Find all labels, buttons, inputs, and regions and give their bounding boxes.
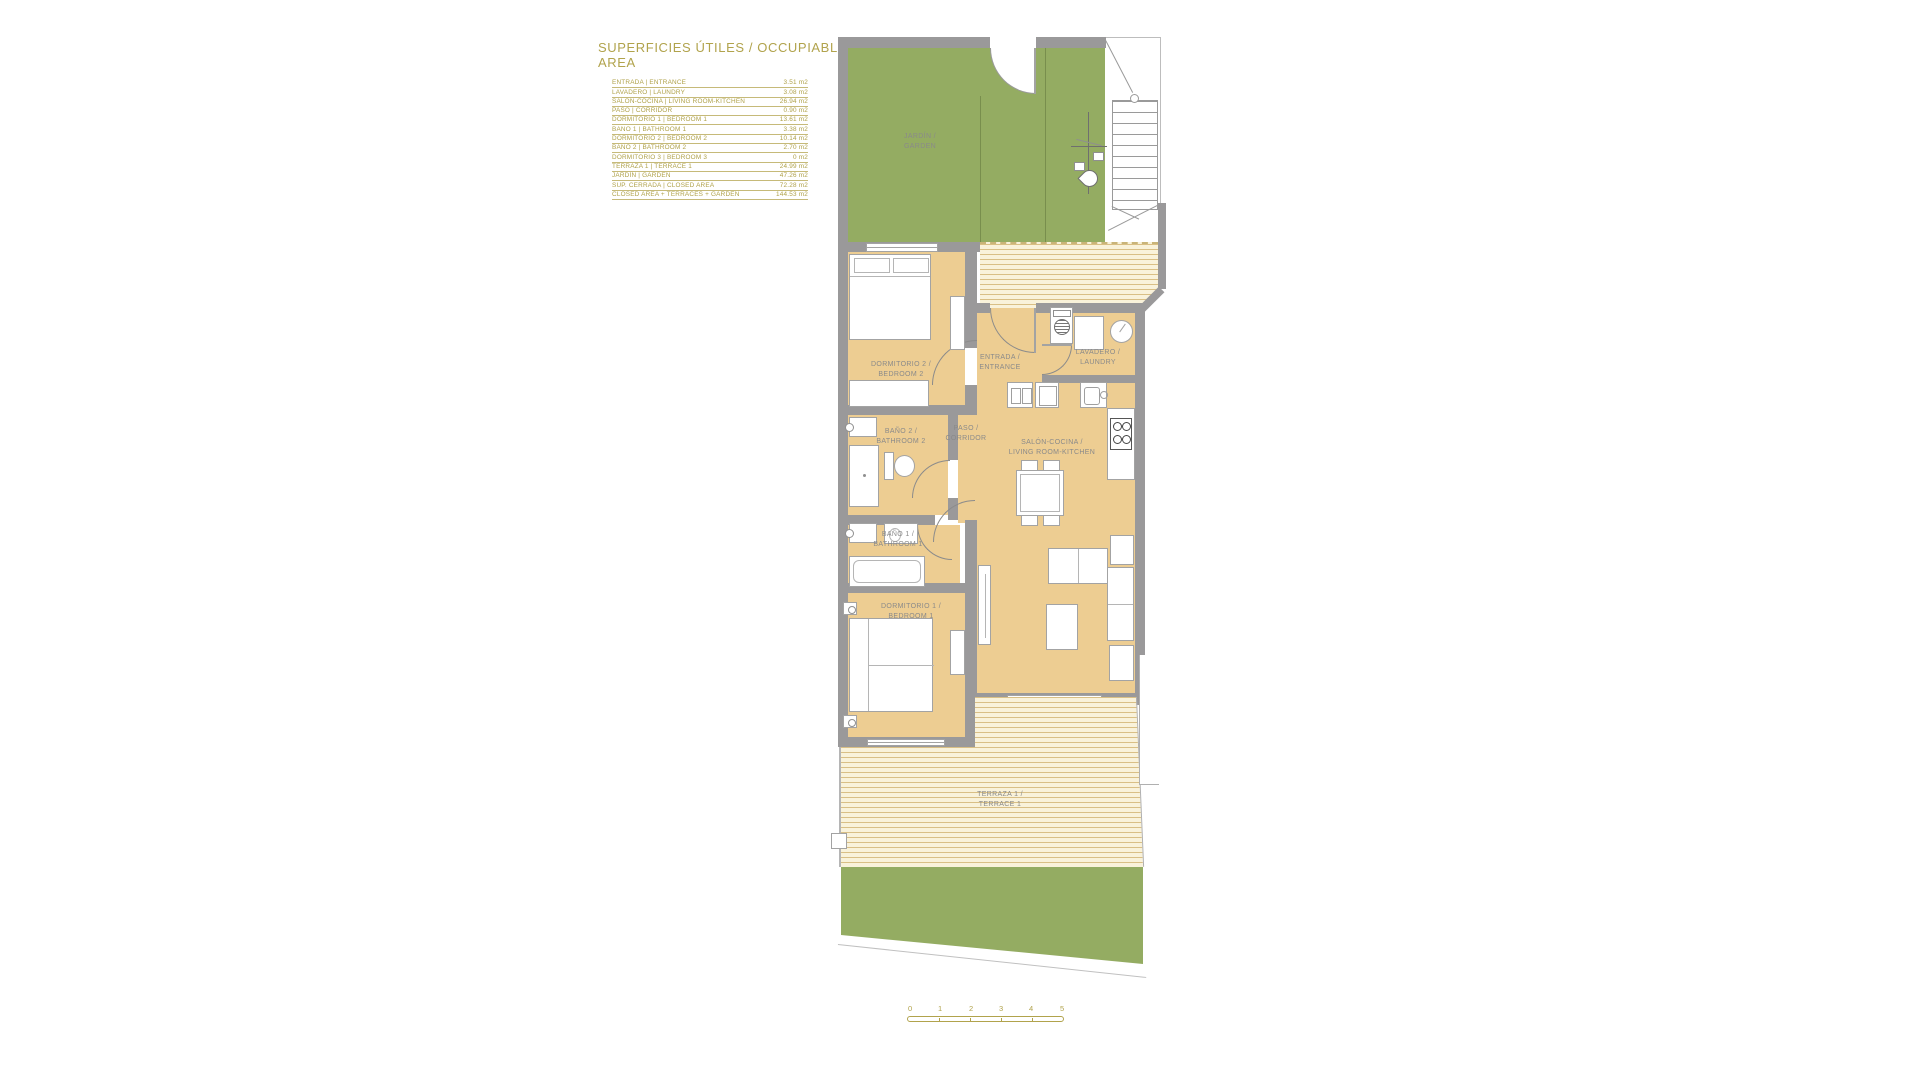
wardrobe-symbol [950, 296, 965, 350]
row-value: 24.99 m2 [780, 163, 808, 171]
garden-pole-icon [1070, 112, 1110, 194]
scale-number: 5 [1060, 1004, 1064, 1013]
area-table: ENTRADA | ENTRANCE3.51 m2 LAVADERO | LAU… [612, 79, 808, 181]
dresser-symbol [849, 380, 929, 407]
row-label: PASO | CORRIDOR [612, 107, 672, 115]
bed-symbol [849, 254, 931, 340]
staircase-symbol [1112, 100, 1158, 210]
page-title: SUPERFICIES ÚTILES / OCCUPIABLE AREA [598, 40, 858, 70]
sofa-symbol [1048, 548, 1108, 584]
nightstand-symbol [843, 715, 857, 728]
boundary-line [1160, 37, 1161, 205]
scale-rule [907, 1016, 1064, 1022]
table-row: BAÑO 1 | BATHROOM 13.38 m2 [612, 125, 808, 134]
shower-symbol [849, 445, 879, 507]
gate-door-leaf [1034, 48, 1036, 94]
row-label: DORMITORIO 3 | BEDROOM 3 [612, 154, 707, 162]
sink-faucet-symbol [1080, 382, 1107, 408]
table-row: DORMITORIO 2 | BEDROOM 210.14 m2 [612, 135, 808, 144]
table-row: BAÑO 2 | BATHROOM 22.70 m2 [612, 144, 808, 153]
row-value: 0 m2 [793, 154, 808, 162]
chair-symbol [1043, 515, 1060, 526]
wardrobe-symbol [950, 630, 965, 675]
wall [838, 37, 990, 48]
row-label: DORMITORIO 2 | BEDROOM 2 [612, 135, 707, 143]
tv-unit-symbol [978, 565, 991, 645]
laundry-counter [1074, 316, 1104, 350]
washing-machine-icon [1050, 307, 1073, 344]
garden-divider-line [980, 96, 981, 242]
room-label-garden: JARDÍN / GARDEN [860, 132, 980, 151]
row-label: BAÑO 1 | BATHROOM 1 [612, 126, 686, 134]
row-label: SUP. CERRADA | CLOSED AREA [612, 182, 714, 190]
scale-number: 4 [1029, 1004, 1033, 1013]
scale-number: 1 [938, 1004, 942, 1013]
wall [977, 303, 990, 313]
row-value: 3.51 m2 [784, 79, 809, 87]
laundry-door-leaf [1042, 344, 1072, 346]
table-row: PASO | CORRIDOR0.90 m2 [612, 107, 808, 116]
deck-walkway [980, 242, 1158, 308]
chair-symbol [1021, 515, 1038, 526]
scale-number: 2 [969, 1004, 973, 1013]
toilet-bowl-symbol [894, 455, 915, 477]
scale-number: 3 [999, 1004, 1003, 1013]
dishwasher-symbol [1035, 382, 1059, 408]
wall [1158, 203, 1166, 289]
room-label-bathroom2: BAÑO 2 / BATHROOM 2 [851, 427, 951, 446]
total-row: SUP. CERRADA | CLOSED AREA72.28 m2 [612, 181, 808, 191]
entrance-door-leaf [1034, 308, 1036, 353]
ramp-diagonal-line [1105, 40, 1133, 93]
side-table-symbol [1109, 645, 1134, 681]
sofa-corner-symbol [1110, 535, 1134, 565]
window [867, 739, 945, 746]
row-value: 3.38 m2 [784, 126, 809, 134]
row-value: 26.94 m2 [780, 98, 808, 106]
room-label-terrace: TERRAZA 1 / TERRACE 1 [940, 790, 1060, 809]
table-row: DORMITORIO 1 | BEDROOM 113.61 m2 [612, 116, 808, 125]
floor-plan-sheet: SUPERFICIES ÚTILES / OCCUPIABLE AREA ENT… [0, 0, 1920, 1080]
kitchen-sink-symbol [1007, 382, 1033, 408]
room-label-entrance: ENTRADA / ENTRANCE [950, 353, 1050, 372]
row-label: BAÑO 2 | BATHROOM 2 [612, 144, 686, 152]
boiler-icon [1110, 320, 1133, 343]
neighbor-landing [1139, 655, 1159, 785]
boundary-line [839, 747, 841, 867]
row-value: 2.70 m2 [784, 144, 809, 152]
garden-bottom-area [841, 867, 1143, 972]
row-label: SALÓN-COCINA | LIVING ROOM-KITCHEN [612, 98, 745, 106]
row-value: 0.90 m2 [784, 107, 809, 115]
table-row: DORMITORIO 3 | BEDROOM 30 m2 [612, 153, 808, 162]
utility-box-symbol [831, 833, 847, 849]
room-label-bedroom2: DORMITORIO 2 / BEDROOM 2 [841, 360, 961, 379]
area-totals: SUP. CERRADA | CLOSED AREA72.28 m2 CLOSE… [612, 180, 808, 200]
row-value: 13.61 m2 [780, 116, 808, 124]
row-label: TERRAZA 1 | TERRACE 1 [612, 163, 692, 171]
dining-table-symbol [1016, 470, 1064, 516]
total-row: CLOSED AREA + TERRACES + GARDEN144.53 m2 [612, 191, 808, 201]
table-row: LAVADERO | LAUNDRY3.08 m2 [612, 88, 808, 97]
wall [838, 37, 848, 747]
wall [965, 385, 977, 415]
row-value: 72.28 m2 [780, 182, 808, 190]
table-row: ENTRADA | ENTRANCE3.51 m2 [612, 79, 808, 88]
boundary-line [1106, 37, 1161, 38]
toilet-tank-symbol [884, 452, 894, 480]
scale-number: 0 [908, 1004, 912, 1013]
row-label: LAVADERO | LAUNDRY [612, 89, 685, 97]
room-label-bathroom1: BAÑO 1 / BATHROOM 1 [848, 530, 948, 549]
room-label-living: SALÓN-COCINA / LIVING ROOM-KITCHEN [972, 438, 1132, 457]
stair-newel-icon [1130, 94, 1139, 103]
bathtub-symbol [849, 556, 925, 587]
row-value: 3.08 m2 [784, 89, 809, 97]
row-value: 10.14 m2 [780, 135, 808, 143]
garden-divider-line [1045, 48, 1046, 242]
room-label-bedroom1: DORMITORIO 1 / BEDROOM 1 [851, 602, 971, 621]
bed-symbol [849, 618, 933, 712]
table-row: TERRAZA 1 | TERRACE 124.99 m2 [612, 163, 808, 172]
row-label: ENTRADA | ENTRANCE [612, 79, 686, 87]
window [866, 243, 938, 252]
sofa-symbol [1107, 567, 1134, 641]
wall [965, 252, 977, 348]
row-label: CLOSED AREA + TERRACES + GARDEN [612, 191, 740, 199]
coffee-table-symbol [1046, 604, 1078, 650]
wall [1036, 37, 1106, 48]
row-label: DORMITORIO 1 | BEDROOM 1 [612, 116, 707, 124]
row-value: 144.53 m2 [776, 191, 808, 199]
table-row: SALÓN-COCINA | LIVING ROOM-KITCHEN26.94 … [612, 98, 808, 107]
room-label-laundry: LAVADERO / LAUNDRY [1048, 348, 1148, 367]
